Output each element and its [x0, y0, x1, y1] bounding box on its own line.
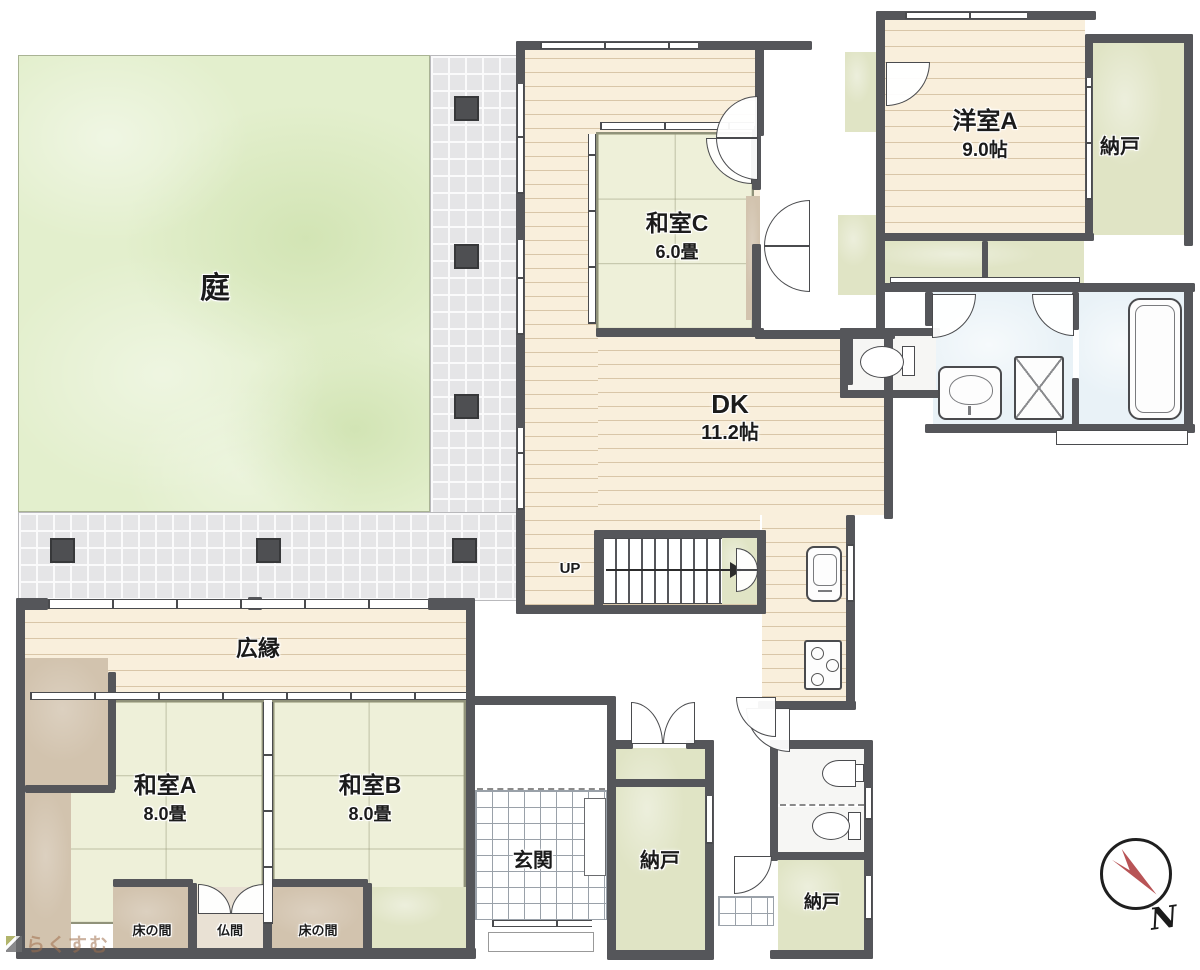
side-alcove: [25, 793, 71, 950]
wall: [1085, 34, 1193, 43]
pillar: [454, 96, 479, 121]
compass-n-label: N: [1140, 899, 1188, 939]
window: [517, 240, 524, 335]
wall: [840, 328, 848, 398]
dk-size: 11.2帖: [660, 422, 800, 445]
stairs-up-label: UP: [548, 560, 592, 577]
pillar: [454, 244, 479, 269]
wall: [466, 696, 616, 705]
wall: [594, 530, 766, 538]
alcove-left-label: 床の間: [116, 924, 188, 939]
wall: [268, 879, 368, 887]
closet-sliding-doors: [890, 277, 1080, 283]
alcove-right-label: 床の間: [282, 924, 354, 939]
bathtub: [1128, 298, 1182, 420]
urinal: [822, 760, 856, 787]
door-swing: [734, 856, 772, 894]
yoshitsu-a-size: 9.0帖: [920, 140, 1050, 162]
window: [865, 788, 872, 820]
wall: [840, 328, 940, 336]
stairs-arrow-line: [606, 569, 732, 571]
sliding-partition: [780, 804, 864, 806]
compass-icon: [1100, 838, 1172, 910]
wall: [607, 700, 616, 958]
washitsu-b-name: 和室B: [305, 772, 435, 798]
shoji-doors: [30, 692, 466, 700]
wall: [876, 233, 1094, 241]
washitsu-c-size: 6.0畳: [612, 242, 742, 263]
wall: [1072, 378, 1079, 428]
wall: [363, 883, 372, 949]
wall: [840, 390, 940, 398]
kitchen-sink: [806, 546, 842, 602]
veranda-label: 広縁: [200, 636, 316, 661]
bay-window: [1056, 430, 1188, 445]
double-door-leaf: [663, 702, 695, 744]
washbasin: [938, 366, 1002, 420]
shoe-cabinet: [584, 798, 606, 876]
pillar: [452, 538, 477, 563]
door-swing: [764, 200, 810, 246]
door-swing: [736, 697, 776, 737]
outside-path-tile: [718, 896, 774, 926]
window: [847, 544, 854, 602]
wall: [757, 530, 766, 614]
washitsu-a-size: 8.0畳: [100, 804, 230, 825]
wall: [1184, 34, 1193, 246]
wall: [113, 879, 193, 887]
wall: [596, 328, 764, 337]
watermark-logo-icon: [6, 936, 22, 952]
wall: [770, 740, 778, 861]
door-swing: [764, 246, 810, 292]
watermark: らくすむ: [6, 930, 110, 957]
tatami-corner: [372, 887, 466, 948]
washitsu-a-name: 和室A: [100, 772, 230, 798]
washitsu-c-name: 和室C: [612, 210, 742, 236]
butsuma-label: 仏間: [197, 924, 263, 939]
stove: [804, 640, 842, 690]
pillar: [50, 538, 75, 563]
fusuma-partition: [263, 702, 273, 924]
watermark-text: らくすむ: [26, 930, 110, 957]
entrance-step-edge: [477, 788, 605, 790]
wall: [705, 740, 714, 958]
double-door-leaf: [631, 702, 663, 744]
wall: [607, 950, 714, 960]
washer-pan: [1014, 356, 1064, 420]
dk-name: DK: [660, 390, 800, 420]
wall: [516, 605, 766, 614]
wall: [752, 244, 761, 337]
entrance-label: 玄関: [493, 850, 573, 873]
window: [517, 428, 524, 510]
wall: [611, 779, 711, 787]
yoshitsu-a-name: 洋室A: [920, 108, 1050, 136]
alcove-left-floor: [113, 887, 188, 949]
entrance-sliding-door: [492, 920, 592, 927]
pillar: [454, 394, 479, 419]
pillar: [256, 538, 281, 563]
wall: [594, 534, 603, 614]
storage-top-right-label: 納戸: [1084, 136, 1156, 159]
storage-bottom-right-label: 納戸: [786, 892, 858, 913]
alcove-right-floor: [272, 887, 363, 949]
shoji-doors: [588, 134, 596, 324]
wall: [876, 283, 1195, 292]
window: [540, 42, 698, 49]
wall: [16, 598, 25, 958]
wall: [770, 852, 872, 860]
staircase: [602, 538, 722, 604]
toilet-bowl: [860, 346, 904, 378]
wall: [864, 740, 873, 959]
storage-center-label: 納戸: [624, 850, 696, 873]
window: [517, 84, 524, 194]
window: [865, 876, 872, 920]
compass-needle-icon: [1103, 841, 1169, 907]
wall: [188, 883, 197, 949]
side-alcove: [25, 658, 108, 786]
floor-plan: 庭 広縁 和室A 8.0畳 和室B 8.0畳 和室C 6.0畳 洋室A 9.0帖…: [0, 0, 1200, 970]
wall: [607, 740, 633, 749]
toilet-bowl: [812, 812, 850, 840]
wall: [466, 598, 475, 958]
wall: [770, 950, 873, 959]
washitsu-b-size: 8.0畳: [305, 804, 435, 825]
entrance-step: [488, 932, 594, 952]
window: [905, 12, 1027, 19]
wall: [1184, 283, 1193, 433]
garden-label: 庭: [150, 272, 280, 307]
veranda-glass-doors: [48, 599, 428, 609]
hall-closet: [845, 52, 879, 132]
sliding-door: [706, 796, 713, 844]
